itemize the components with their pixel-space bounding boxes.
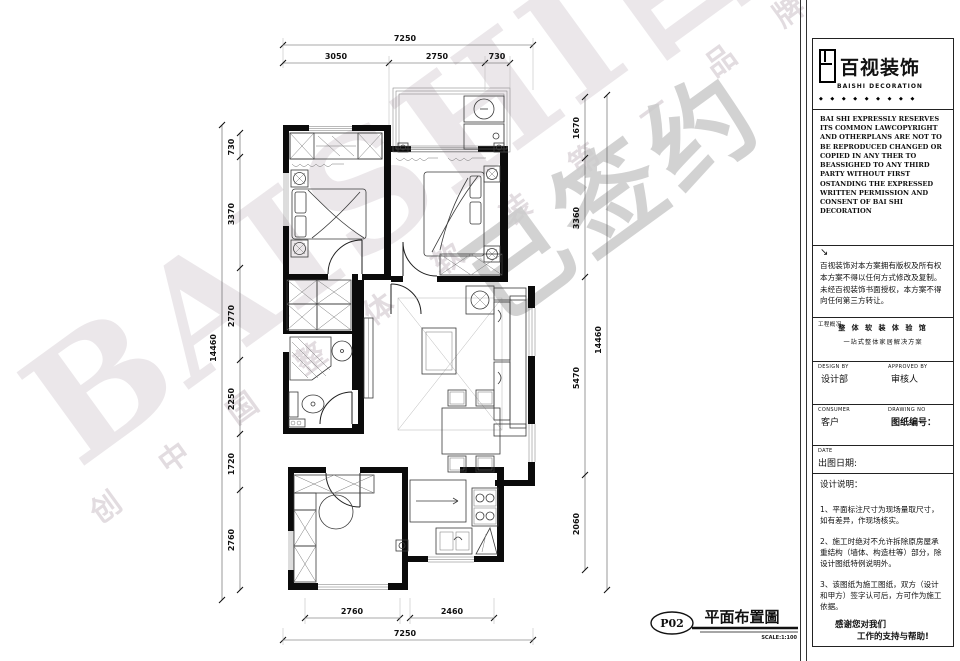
- toilet-tank: [289, 392, 298, 417]
- dim-right-1: 1670: [572, 116, 581, 139]
- drawing-no-label-cn: 图纸编号：: [883, 413, 952, 428]
- dim-top-3: 730: [489, 52, 506, 61]
- round-table: [319, 495, 353, 529]
- dim-left-1: 730: [227, 138, 236, 155]
- approved-by-label-cn: 审核人: [883, 370, 952, 385]
- design-by-label-en: DESIGN BY: [813, 361, 882, 370]
- frame-divider-line-2: [806, 0, 807, 661]
- diagonal-arrow-icon: ↘: [813, 245, 953, 258]
- sink: [332, 341, 352, 361]
- dim-left-3: 2770: [227, 304, 236, 327]
- thanks-line-1: 感谢您对我们: [813, 618, 953, 630]
- sofa-back: [510, 296, 526, 428]
- thanks-note: 感谢您对我们 工作的支持与帮助!: [813, 618, 953, 642]
- dim-right-total: 14460: [594, 326, 603, 354]
- approved-by-label-en: APPROVED BY: [883, 361, 952, 370]
- dim-top-total: 7250: [394, 34, 417, 43]
- dim-left-4: 2250: [227, 387, 236, 410]
- consumer-label-cn: 客户: [813, 413, 882, 428]
- kitchen: [396, 480, 498, 554]
- date-label-en: DATE: [813, 445, 953, 454]
- design-approve-row: DESIGN BY 设计部 APPROVED BY 审核人: [813, 361, 953, 404]
- frame-divider-line: [800, 0, 801, 661]
- note-3: 3、该图纸为施工图纸，双方（设计和甲方）签字认可后，方可作为施工依据。: [820, 579, 946, 613]
- consumer-label-en: CONSUMER: [813, 404, 882, 413]
- dim-top-2: 2750: [426, 52, 449, 61]
- design-by-label-cn: 设计部: [813, 370, 882, 385]
- copyright-english: BAI SHI EXPRESSLY RESERVES ITS COMMON LA…: [813, 109, 953, 222]
- copyright-chinese: 百视装饰对本方案拥有版权及所有权本方案不得以任何方式修改及复制。未经百视装饰书面…: [813, 258, 953, 309]
- door-arc: [326, 473, 360, 507]
- dim-left-total: 14460: [209, 334, 218, 362]
- study-room: [294, 473, 374, 582]
- door-arc: [320, 392, 352, 424]
- dim-bottom-1: 2760: [341, 607, 364, 616]
- bed: [424, 172, 484, 256]
- dim-right-4: 2060: [572, 512, 581, 535]
- hall-wardrobe: [287, 280, 351, 330]
- balcony: [393, 88, 510, 152]
- floor-plan-svg: 7250 3050 2750 730 14460: [0, 0, 800, 661]
- dim-left-6: 2760: [227, 528, 236, 551]
- design-notes-section: 设计说明： 1、平面标注尺寸为现场量取尺寸，如有差异，作现场核实。 2、施工时绝…: [813, 473, 953, 626]
- drawing-sheet: BAISHI百视装饰 创 中 国 整 体 软 装 第 一 品 牌 已签约: [0, 0, 960, 661]
- dim-bottom-total: 7250: [394, 629, 417, 638]
- toilet: [302, 395, 324, 413]
- copyright-en-section: BAI SHI EXPRESSLY RESERVES ITS COMMON LA…: [813, 109, 953, 222]
- bedroom-1: [290, 133, 382, 274]
- dim-top-1: 3050: [325, 52, 348, 61]
- drawing-code: P02: [660, 617, 684, 630]
- note-2: 2、施工时绝对不允许拆除原房屋承重结构（墙体、构造柱等）部分，除设计图纸特例说明…: [820, 536, 946, 570]
- note-1: 1、平面标注尺寸为现场量取尺寸，如有差异，作现场核实。: [820, 504, 946, 527]
- drawing-scale: SCALE:1:100: [761, 635, 797, 641]
- date-label-cn: 出图日期:: [813, 454, 953, 469]
- title-block: 百视装饰 BAISHI DECORATION ◆ ◆ ◆ ◆ ◆ ◆ ◆ ◆ ◆…: [812, 38, 954, 647]
- consumer-drawingno-row: CONSUMER 客户 DRAWING NO 图纸编号：: [813, 404, 953, 445]
- project-section: 工程概况: [813, 317, 953, 361]
- dim-left-5: 1720: [227, 452, 236, 475]
- notes-title: 设计说明：: [820, 479, 946, 492]
- shower: [290, 337, 331, 380]
- bedroom-2: [396, 158, 502, 276]
- logo-diamond-row: ◆ ◆ ◆ ◆ ◆ ◆ ◆ ◆ ◆: [813, 90, 953, 102]
- stove: [472, 488, 498, 526]
- living-room: [364, 284, 526, 472]
- door-arc: [403, 242, 437, 276]
- door-arc: [328, 240, 362, 274]
- drawing-no-label-en: DRAWING NO: [883, 404, 952, 413]
- dim-right-2: 3360: [572, 206, 581, 229]
- logo-section: 百视装饰 BAISHI DECORATION ◆ ◆ ◆ ◆ ◆ ◆ ◆ ◆ ◆: [813, 39, 953, 102]
- project-label: 工程概况: [813, 317, 953, 328]
- thanks-line-2: 工作的支持与帮助!: [813, 630, 953, 642]
- drawing-title: P02 平面布置圖 SCALE:1:100: [651, 608, 798, 641]
- date-row: DATE 出图日期:: [813, 445, 953, 473]
- baishi-logo-icon: [819, 49, 836, 83]
- bathroom: [289, 337, 352, 427]
- drawing-title-text: 平面布置圖: [704, 608, 779, 626]
- dim-left-2: 3370: [227, 202, 236, 225]
- dimensions: 7250 3050 2750 730 14460: [209, 34, 610, 645]
- dim-bottom-2: 2460: [441, 607, 464, 616]
- dim-right-3: 5470: [572, 366, 581, 389]
- dining-table: [442, 408, 500, 454]
- entry-door-arc: [391, 284, 421, 314]
- logo-chinese: 百视装饰: [840, 53, 920, 80]
- logo-english: BAISHI DECORATION: [813, 83, 953, 90]
